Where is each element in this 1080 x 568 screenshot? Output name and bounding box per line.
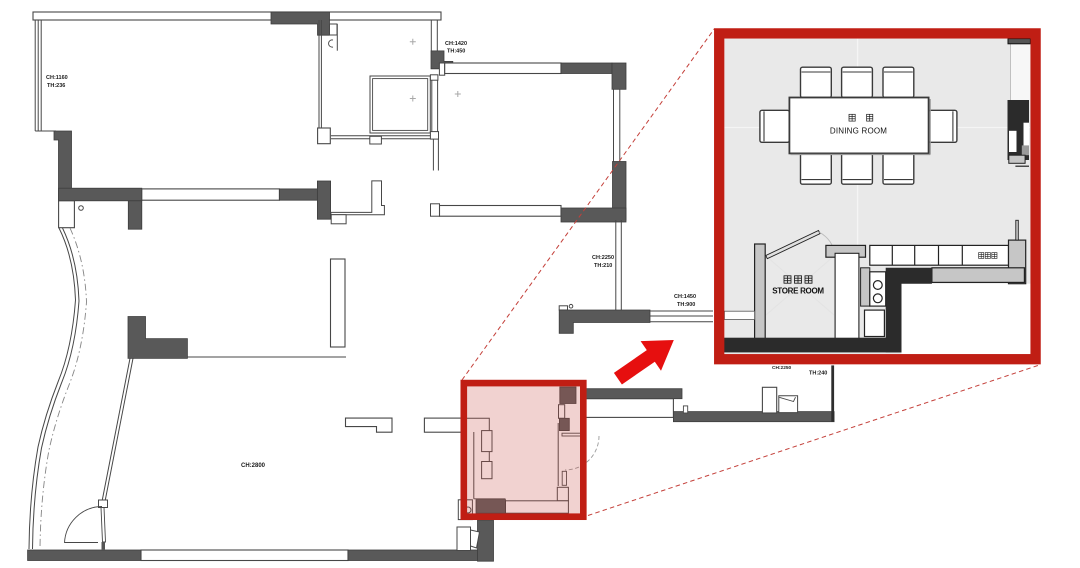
svg-text:CH:1160: CH:1160: [46, 75, 68, 81]
svg-text:DINING ROOM: DINING ROOM: [830, 127, 887, 136]
svg-text:TH:450: TH:450: [447, 49, 465, 55]
svg-text:TH:236: TH:236: [47, 83, 65, 89]
svg-text:CH:2800: CH:2800: [241, 463, 266, 469]
svg-text:CH:1420: CH:1420: [445, 41, 467, 47]
svg-text:CH:2250: CH:2250: [772, 365, 792, 371]
svg-text:STORE ROOM: STORE ROOM: [772, 287, 824, 296]
svg-text:CH:2250: CH:2250: [592, 255, 614, 261]
svg-text:TH:210: TH:210: [594, 263, 612, 269]
svg-text:TH:900: TH:900: [677, 302, 695, 308]
svg-text:CH:1450: CH:1450: [674, 294, 696, 300]
svg-text:TH:240: TH:240: [809, 371, 827, 377]
